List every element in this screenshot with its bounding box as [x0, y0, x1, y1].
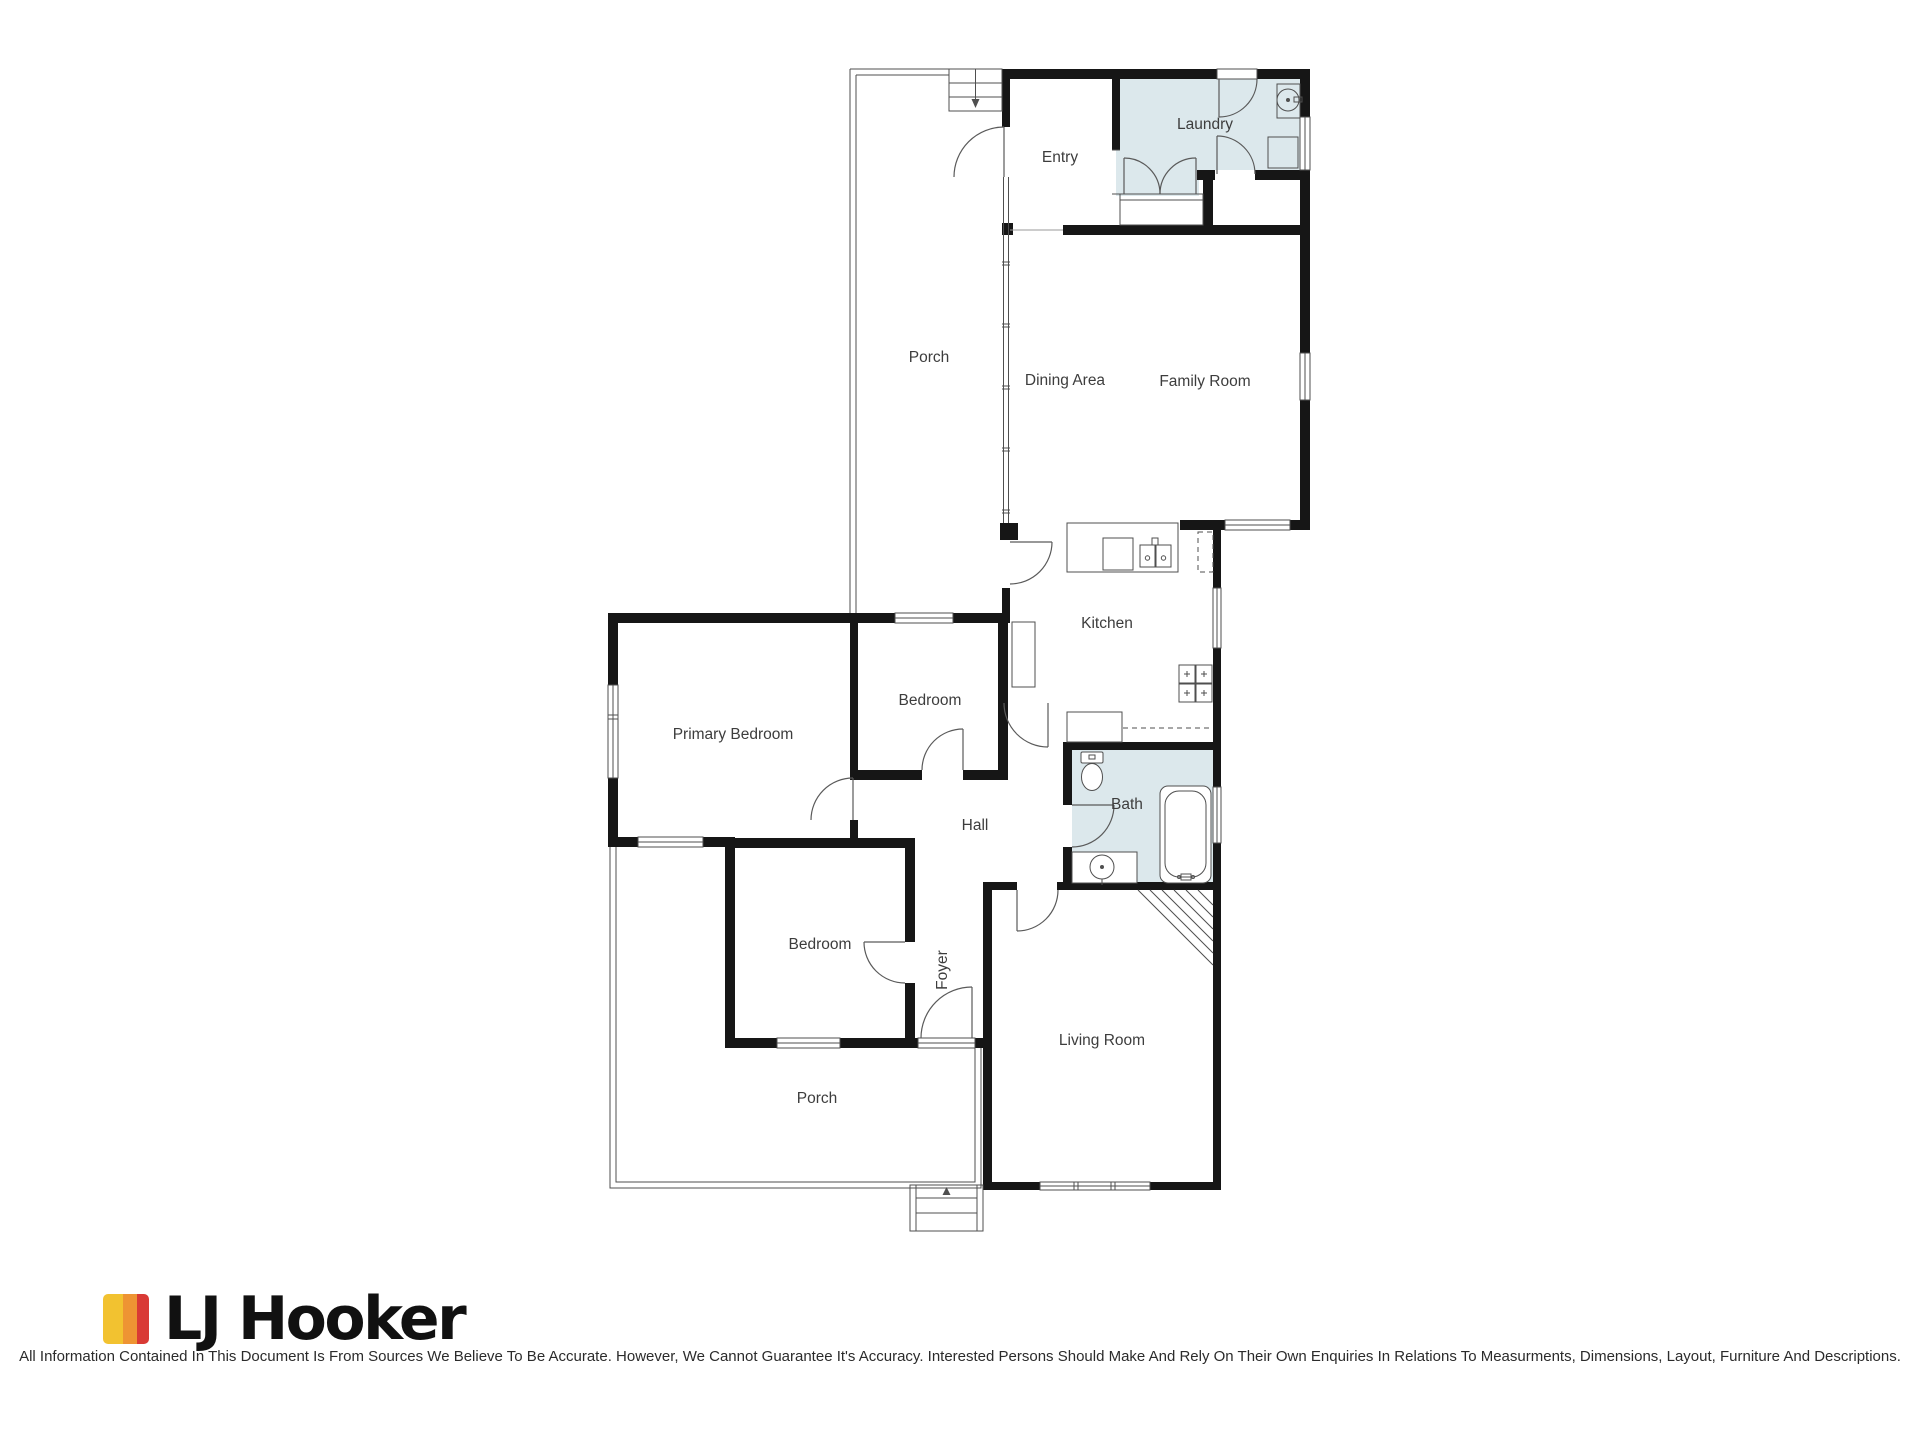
room-label-living-room: Living Room — [1059, 1032, 1145, 1049]
ljhooker-logo: LJ Hooker — [103, 1290, 464, 1348]
wall-openings — [608, 69, 1310, 1190]
linen-closet — [1120, 194, 1203, 225]
room-label-primary-bedroom: Primary Bedroom — [673, 726, 794, 743]
windows — [608, 69, 1310, 1190]
room-label-bath: Bath — [1111, 796, 1143, 813]
floorplan-svg: Porch Entry Laundry Dining Area Family R… — [0, 0, 1920, 1440]
door-arc — [954, 127, 1004, 177]
room-label-porch-upper: Porch — [909, 349, 950, 366]
ljhooker-logo-mark-icon — [103, 1294, 149, 1344]
corner-stairs-icon — [1138, 890, 1213, 965]
disclaimer-text: All Information Contained In This Docume… — [0, 1348, 1920, 1365]
vanity-sink-icon — [1072, 852, 1137, 885]
room-label-bedroom-middle: Bedroom — [899, 692, 962, 709]
door-arc — [922, 729, 963, 770]
door-arc — [921, 987, 972, 1038]
walls — [608, 69, 1310, 1190]
cooktop-icon — [1179, 665, 1212, 702]
brand-name: LJ Hooker — [164, 1289, 464, 1349]
door-arc — [864, 942, 905, 983]
floorplan-page: Porch Entry Laundry Dining Area Family R… — [0, 0, 1920, 1440]
porch-upper-outline — [850, 69, 1002, 613]
counter — [1067, 523, 1178, 572]
stairs-down-icon — [949, 69, 1002, 111]
door-arc — [1004, 703, 1048, 747]
room-label-hall: Hall — [962, 817, 989, 834]
counter — [1067, 712, 1122, 742]
toilet-icon — [1081, 752, 1103, 791]
room-label-family-room: Family Room — [1159, 373, 1250, 390]
kitchen-fixtures — [1012, 523, 1213, 742]
room-label-porch-lower: Porch — [797, 1090, 838, 1107]
room-label-entry: Entry — [1042, 149, 1078, 166]
bathtub-icon — [1160, 786, 1211, 883]
room-label-kitchen: Kitchen — [1081, 615, 1133, 632]
door-arc — [811, 778, 853, 820]
refrigerator-icon — [1012, 622, 1035, 687]
door-arc — [1010, 542, 1052, 584]
dishwasher-icon — [1198, 532, 1213, 572]
room-label-foyer: Foyer — [934, 950, 951, 990]
room-label-dining-area: Dining Area — [1025, 372, 1106, 389]
front-steps-icon — [910, 1185, 983, 1231]
door-arc — [1017, 890, 1058, 931]
room-label-laundry: Laundry — [1177, 116, 1233, 133]
room-label-bedroom-lower: Bedroom — [789, 936, 852, 953]
